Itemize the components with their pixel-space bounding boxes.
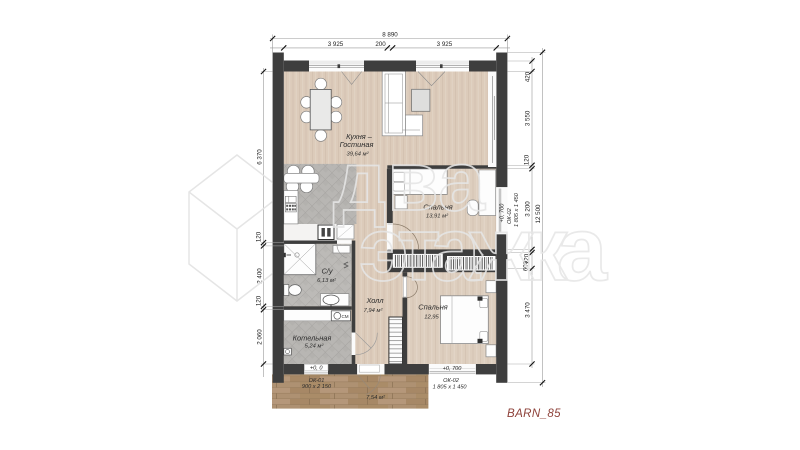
svg-text:200: 200 [375,41,386,48]
svg-text:3 470: 3 470 [524,302,531,318]
svg-text:12,95: 12,95 [424,315,439,321]
svg-text:BARN_85: BARN_85 [507,408,561,420]
svg-text:8 890: 8 890 [382,32,398,39]
svg-text:СМ: СМ [342,314,349,319]
svg-text:2 060: 2 060 [256,329,263,345]
svg-text:900 х 2 150: 900 х 2 150 [302,384,332,390]
svg-text:3 925: 3 925 [437,41,453,48]
svg-text:ОК-01: ОК-01 [309,378,325,384]
svg-text:ОК-02: ОК-02 [443,378,460,384]
svg-text:6,13 м²: 6,13 м² [317,278,337,284]
svg-text:6 370: 6 370 [256,149,263,165]
svg-text:Котельная: Котельная [293,334,332,343]
svg-text:7,54 м²: 7,54 м² [366,395,386,401]
svg-text:+0, 0: +0, 0 [310,366,323,372]
svg-text:120: 120 [255,295,262,306]
svg-text:120: 120 [523,154,530,165]
svg-text:5,24 м²: 5,24 м² [305,344,325,350]
svg-text:420: 420 [524,71,531,82]
svg-text:3 925: 3 925 [328,41,344,48]
svg-text:3 550: 3 550 [524,110,531,126]
svg-text:+0, 700: +0, 700 [443,366,463,372]
svg-text:С/у: С/у [321,267,333,276]
svg-text:7,94 м²: 7,94 м² [364,308,384,314]
svg-text:120: 120 [255,231,262,242]
svg-text:1 805 х 1 450: 1 805 х 1 450 [433,384,468,390]
svg-text:этажка: этажка [359,200,608,300]
svg-text:Спальня: Спальня [418,303,448,312]
